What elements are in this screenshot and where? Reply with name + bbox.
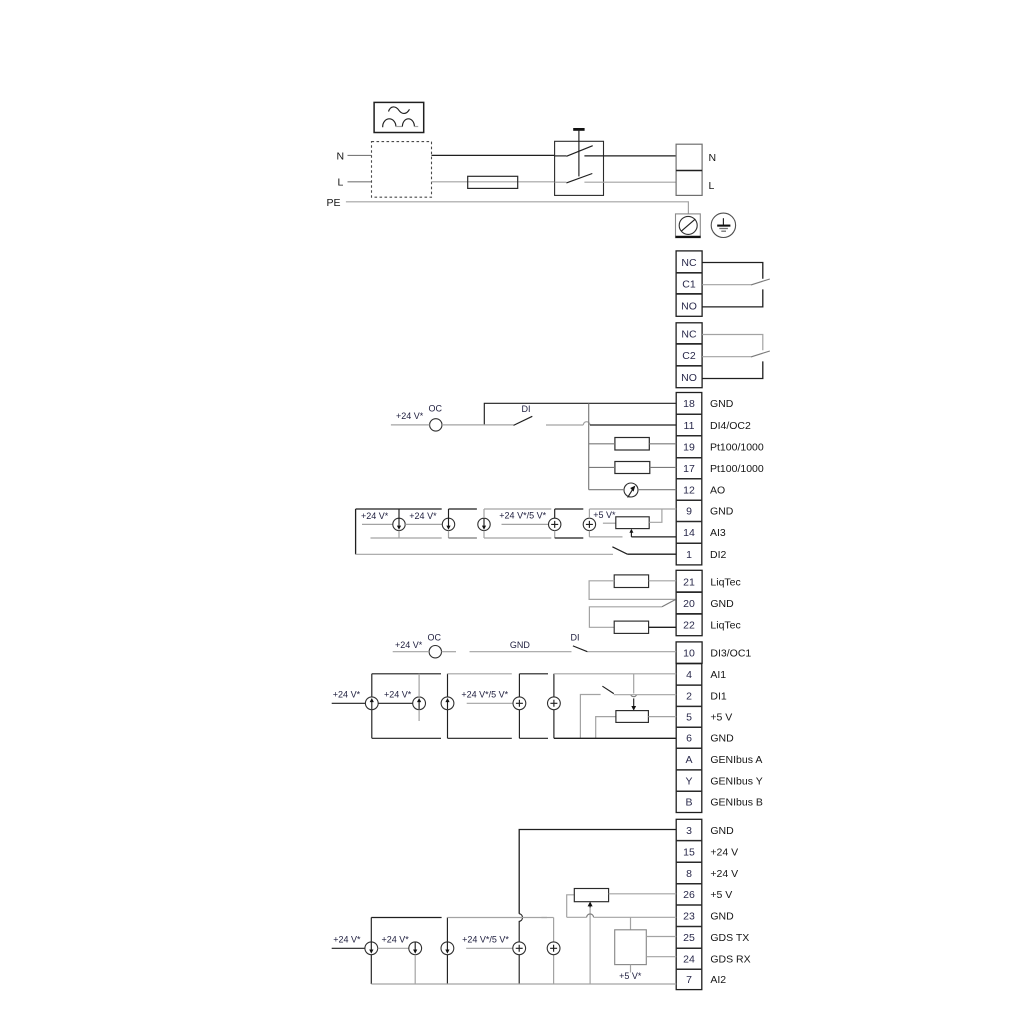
svg-text:2: 2 bbox=[686, 691, 692, 703]
svg-text:N: N bbox=[709, 152, 717, 164]
svg-text:DI: DI bbox=[522, 404, 531, 414]
svg-text:4: 4 bbox=[686, 669, 692, 681]
svg-text:+5 V*: +5 V* bbox=[619, 971, 642, 981]
svg-text:+24 V*: +24 V* bbox=[333, 935, 361, 945]
svg-text:7: 7 bbox=[686, 974, 692, 986]
svg-text:OC: OC bbox=[428, 633, 442, 643]
svg-text:GND: GND bbox=[710, 911, 734, 923]
svg-text:Y: Y bbox=[685, 775, 692, 787]
svg-text:+5 V: +5 V bbox=[710, 712, 732, 724]
svg-text:+24 V*: +24 V* bbox=[384, 690, 412, 700]
svg-text:Pt100/1000: Pt100/1000 bbox=[710, 463, 764, 475]
svg-text:GND: GND bbox=[710, 825, 734, 837]
svg-text:+24 V*: +24 V* bbox=[361, 511, 389, 521]
svg-text:GND: GND bbox=[710, 398, 734, 410]
svg-text:5: 5 bbox=[686, 712, 692, 724]
svg-text:AI3: AI3 bbox=[710, 527, 726, 539]
svg-text:GND: GND bbox=[710, 733, 734, 745]
svg-text:GDS TX: GDS TX bbox=[710, 932, 749, 944]
svg-text:8: 8 bbox=[686, 868, 692, 880]
svg-text:21: 21 bbox=[683, 576, 695, 588]
svg-text:C1: C1 bbox=[682, 279, 696, 291]
svg-text:+24 V*/5 V*: +24 V*/5 V* bbox=[461, 690, 508, 700]
svg-text:+24 V*/5 V*: +24 V*/5 V* bbox=[462, 935, 509, 945]
svg-text:DI2: DI2 bbox=[710, 549, 727, 561]
svg-text:LiqTec: LiqTec bbox=[710, 620, 740, 632]
svg-text:DI1: DI1 bbox=[710, 691, 727, 703]
svg-text:GND: GND bbox=[510, 640, 531, 650]
svg-text:L: L bbox=[709, 180, 715, 192]
svg-text:14: 14 bbox=[683, 527, 695, 539]
svg-text:GENIbus B: GENIbus B bbox=[710, 797, 763, 809]
svg-text:DI3/OC1: DI3/OC1 bbox=[710, 648, 751, 660]
svg-text:+24 V: +24 V bbox=[710, 846, 738, 858]
svg-text:22: 22 bbox=[683, 620, 695, 632]
svg-text:+24 V: +24 V bbox=[710, 868, 738, 880]
svg-text:AI1: AI1 bbox=[710, 669, 726, 681]
svg-text:18: 18 bbox=[683, 398, 695, 410]
svg-text:GND: GND bbox=[710, 506, 734, 518]
svg-text:DI: DI bbox=[571, 633, 580, 643]
svg-text:PE: PE bbox=[327, 197, 341, 209]
svg-text:11: 11 bbox=[684, 420, 695, 432]
svg-text:DI4/OC2: DI4/OC2 bbox=[710, 420, 751, 432]
svg-text:C2: C2 bbox=[682, 350, 696, 362]
svg-text:NO: NO bbox=[681, 372, 697, 384]
svg-text:+24 V*: +24 V* bbox=[396, 411, 424, 421]
svg-text:GDS RX: GDS RX bbox=[710, 954, 750, 966]
svg-text:+24 V*: +24 V* bbox=[395, 640, 423, 650]
svg-text:AI2: AI2 bbox=[710, 974, 726, 986]
svg-text:GENIbus A: GENIbus A bbox=[710, 754, 762, 766]
svg-text:LiqTec: LiqTec bbox=[710, 576, 740, 588]
svg-text:GENIbus Y: GENIbus Y bbox=[710, 775, 762, 787]
svg-text:23: 23 bbox=[683, 911, 695, 923]
svg-text:+5 V*: +5 V* bbox=[593, 510, 616, 520]
svg-text:Pt100/1000: Pt100/1000 bbox=[710, 442, 764, 454]
svg-text:10: 10 bbox=[683, 648, 695, 660]
svg-text:GND: GND bbox=[710, 598, 734, 610]
svg-text:3: 3 bbox=[686, 825, 692, 837]
svg-text:6: 6 bbox=[686, 733, 692, 745]
svg-text:19: 19 bbox=[683, 442, 695, 454]
svg-text:9: 9 bbox=[686, 506, 692, 518]
svg-text:A: A bbox=[685, 754, 692, 766]
svg-text:1: 1 bbox=[686, 549, 692, 561]
svg-text:+5 V: +5 V bbox=[710, 889, 732, 901]
svg-text:+24 V*: +24 V* bbox=[382, 935, 410, 945]
svg-text:15: 15 bbox=[683, 846, 695, 858]
svg-text:25: 25 bbox=[683, 932, 695, 944]
svg-text:20: 20 bbox=[683, 598, 695, 610]
svg-text:NC: NC bbox=[681, 257, 697, 269]
svg-text:+24 V*/5 V*: +24 V*/5 V* bbox=[499, 511, 546, 521]
svg-text:B: B bbox=[685, 797, 692, 809]
svg-text:12: 12 bbox=[683, 484, 695, 496]
svg-text:L: L bbox=[338, 176, 344, 188]
svg-text:+24 V*: +24 V* bbox=[409, 511, 437, 521]
svg-text:26: 26 bbox=[683, 889, 695, 901]
svg-text:17: 17 bbox=[683, 463, 695, 475]
svg-text:+24 V*: +24 V* bbox=[333, 690, 361, 700]
svg-text:OC: OC bbox=[429, 404, 443, 414]
svg-text:AO: AO bbox=[710, 484, 725, 496]
svg-text:NC: NC bbox=[681, 329, 697, 341]
svg-text:24: 24 bbox=[683, 954, 695, 966]
svg-text:NO: NO bbox=[681, 300, 697, 312]
svg-text:N: N bbox=[337, 150, 345, 162]
